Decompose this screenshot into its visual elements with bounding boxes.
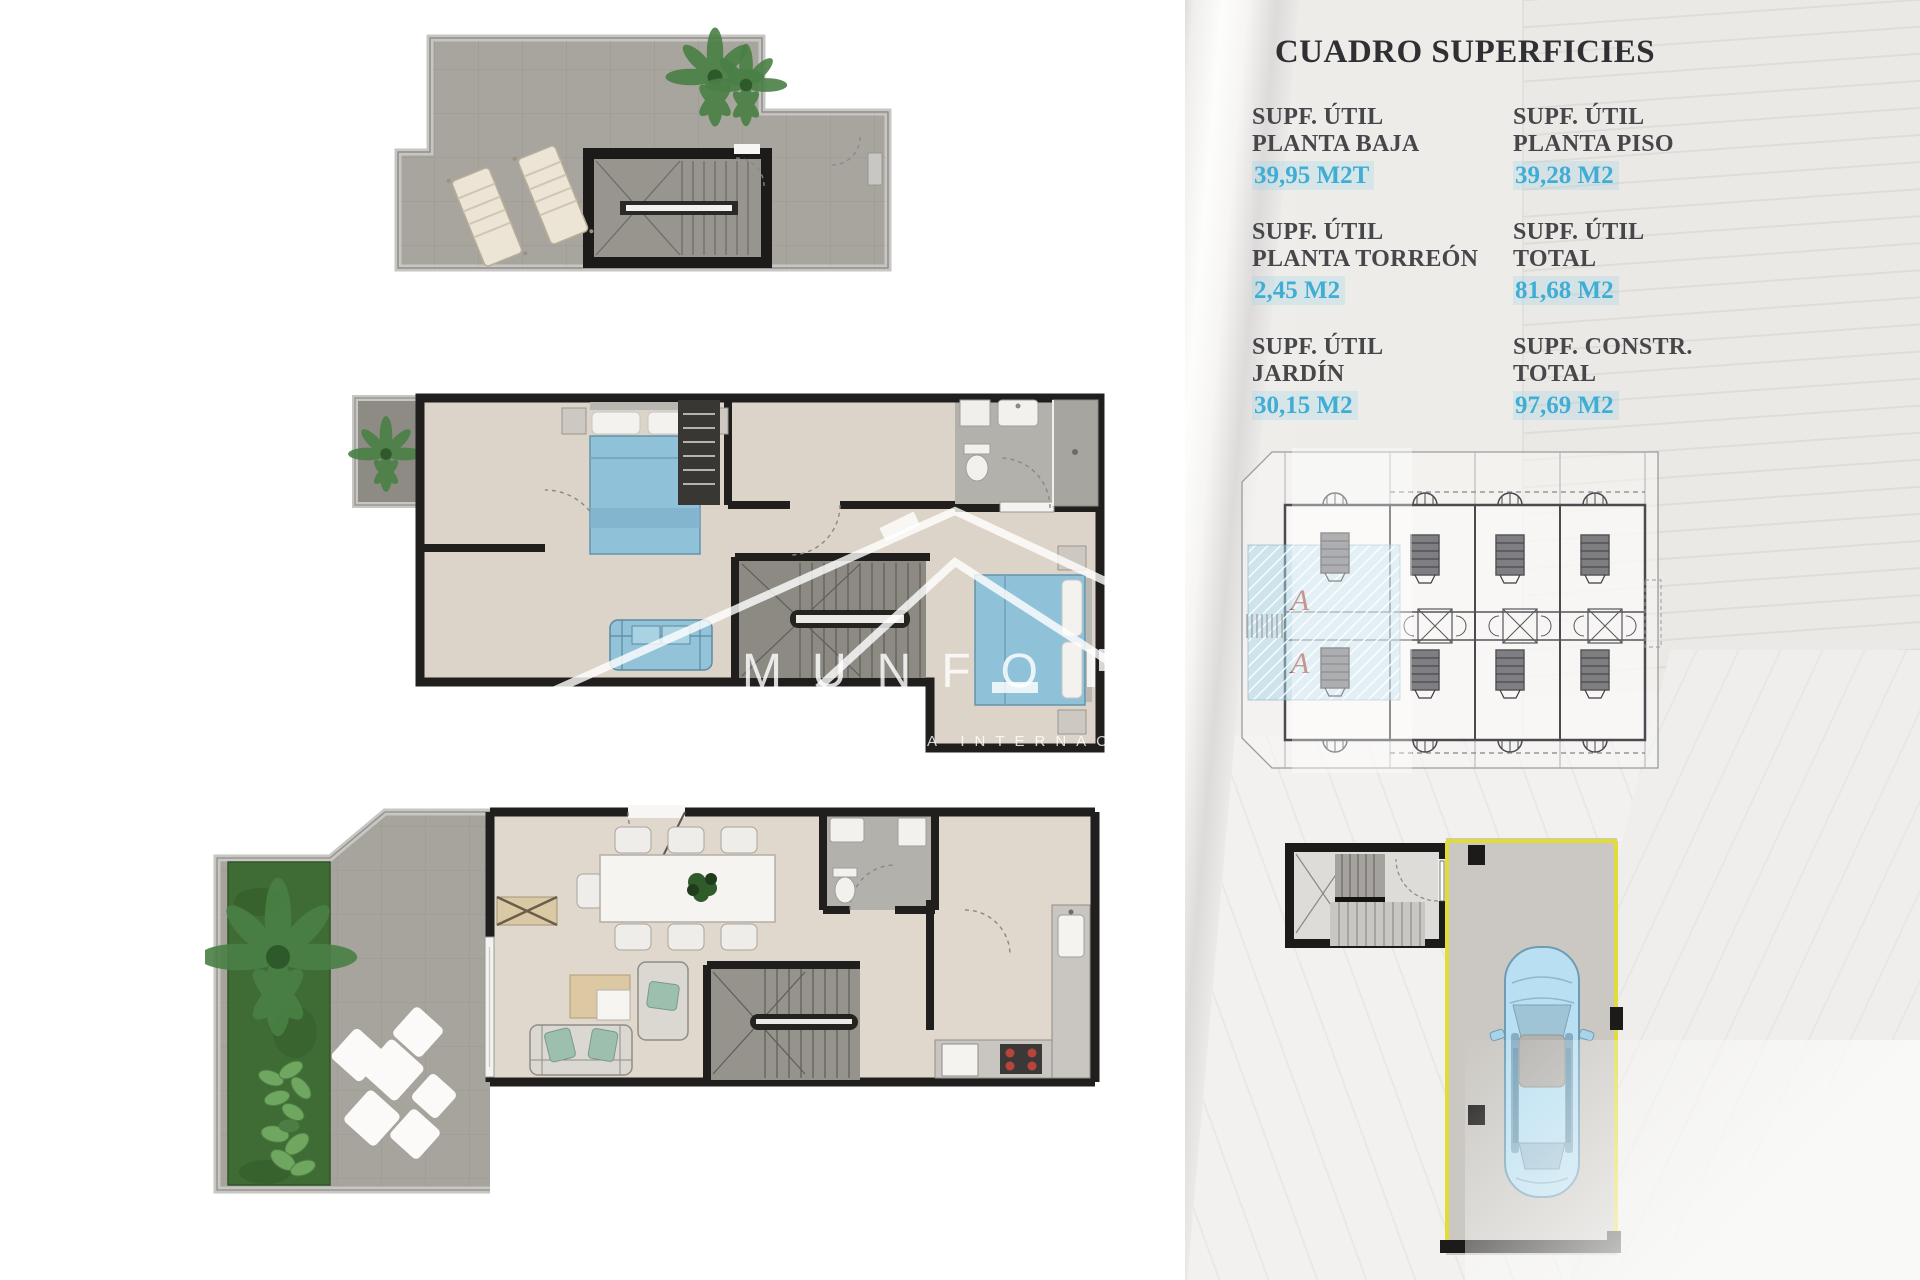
nightstand (1058, 710, 1086, 734)
entry-label: SUPF. ÚTIL (1252, 334, 1513, 361)
pillow (1062, 580, 1082, 636)
nightstand (562, 408, 586, 434)
fridge (942, 1044, 978, 1076)
roof-stairwell (583, 144, 772, 268)
stairwell-door (734, 144, 760, 154)
entry-value: 39,95 M2T (1252, 161, 1374, 190)
balcony (348, 398, 424, 505)
window (1000, 502, 1054, 512)
entry-label: PLANTA BAJA (1252, 131, 1513, 158)
first-floor-plan (340, 388, 1110, 756)
entry-value: 2,45 M2 (1252, 276, 1345, 305)
console-table (497, 897, 557, 925)
toilet (835, 877, 855, 903)
surface-entry-constr-total: SUPF. CONSTR. TOTAL 97,69 M2 (1513, 334, 1753, 420)
sofa (610, 620, 712, 670)
surface-panel: CUADRO SUPERFICIES SUPF. ÚTIL PLANTA BAJ… (1185, 0, 1920, 1280)
entry-value: 30,15 M2 (1252, 391, 1358, 420)
kitchen-sink (1058, 915, 1084, 957)
stairs (711, 969, 860, 1080)
roof-terrace-plan (390, 25, 910, 275)
side-table (597, 990, 630, 1020)
site-plan: A A (1237, 448, 1662, 773)
planter (868, 153, 882, 185)
entry-door (628, 805, 685, 818)
surface-entry-jardin: SUPF. ÚTIL JARDÍN 30,15 M2 (1252, 334, 1513, 420)
entry-label: SUPF. ÚTIL (1513, 104, 1753, 131)
sink (830, 818, 864, 842)
washer (898, 818, 926, 846)
surface-entry-planta-torreon: SUPF. ÚTIL PLANTA TORREÓN 2,45 M2 (1252, 219, 1513, 305)
windshield (1513, 1005, 1571, 1037)
stairs (739, 561, 926, 678)
pillow (1062, 642, 1082, 698)
entry-value: 97,69 M2 (1513, 391, 1619, 420)
entry-label: TOTAL (1513, 361, 1753, 388)
pillow (592, 412, 640, 434)
garage-stairs (1285, 843, 1448, 948)
entry-label: SUPF. ÚTIL (1252, 219, 1513, 246)
toilet (966, 455, 988, 481)
surface-table: SUPF. ÚTIL PLANTA BAJA 39,95 M2T SUPF. Ú… (1252, 104, 1753, 420)
floorplan-sheet: MUNFO A INTERNAC CUADRO SUPERFICIES SUPF… (0, 0, 1920, 1280)
entry-label: SUPF. ÚTIL (1252, 104, 1513, 131)
entry-label: SUPF. CONSTR. (1513, 334, 1753, 361)
entry-label: SUPF. ÚTIL (1513, 219, 1753, 246)
corner-fade (1465, 1040, 1920, 1280)
ground-floor-plan (205, 782, 1105, 1202)
entry-value: 81,68 M2 (1513, 276, 1619, 305)
surface-entry-util-total: SUPF. ÚTIL TOTAL 81,68 M2 (1513, 219, 1753, 305)
entry-label: TOTAL (1513, 246, 1753, 273)
entry-label: JARDÍN (1252, 361, 1513, 388)
entry-label: PLANTA PISO (1513, 131, 1753, 158)
washer (960, 400, 990, 426)
surface-entry-planta-baja: SUPF. ÚTIL PLANTA BAJA 39,95 M2T (1252, 104, 1513, 190)
entry-value: 39,28 M2 (1513, 161, 1619, 190)
entry-label: PLANTA TORREÓN (1252, 246, 1513, 273)
surface-entry-planta-piso: SUPF. ÚTIL PLANTA PISO 39,28 M2 (1513, 104, 1753, 190)
wardrobe (678, 400, 720, 505)
stove (1000, 1044, 1042, 1074)
nightstand (1058, 546, 1086, 570)
panel-title: CUADRO SUPERFICIES (1185, 34, 1745, 71)
